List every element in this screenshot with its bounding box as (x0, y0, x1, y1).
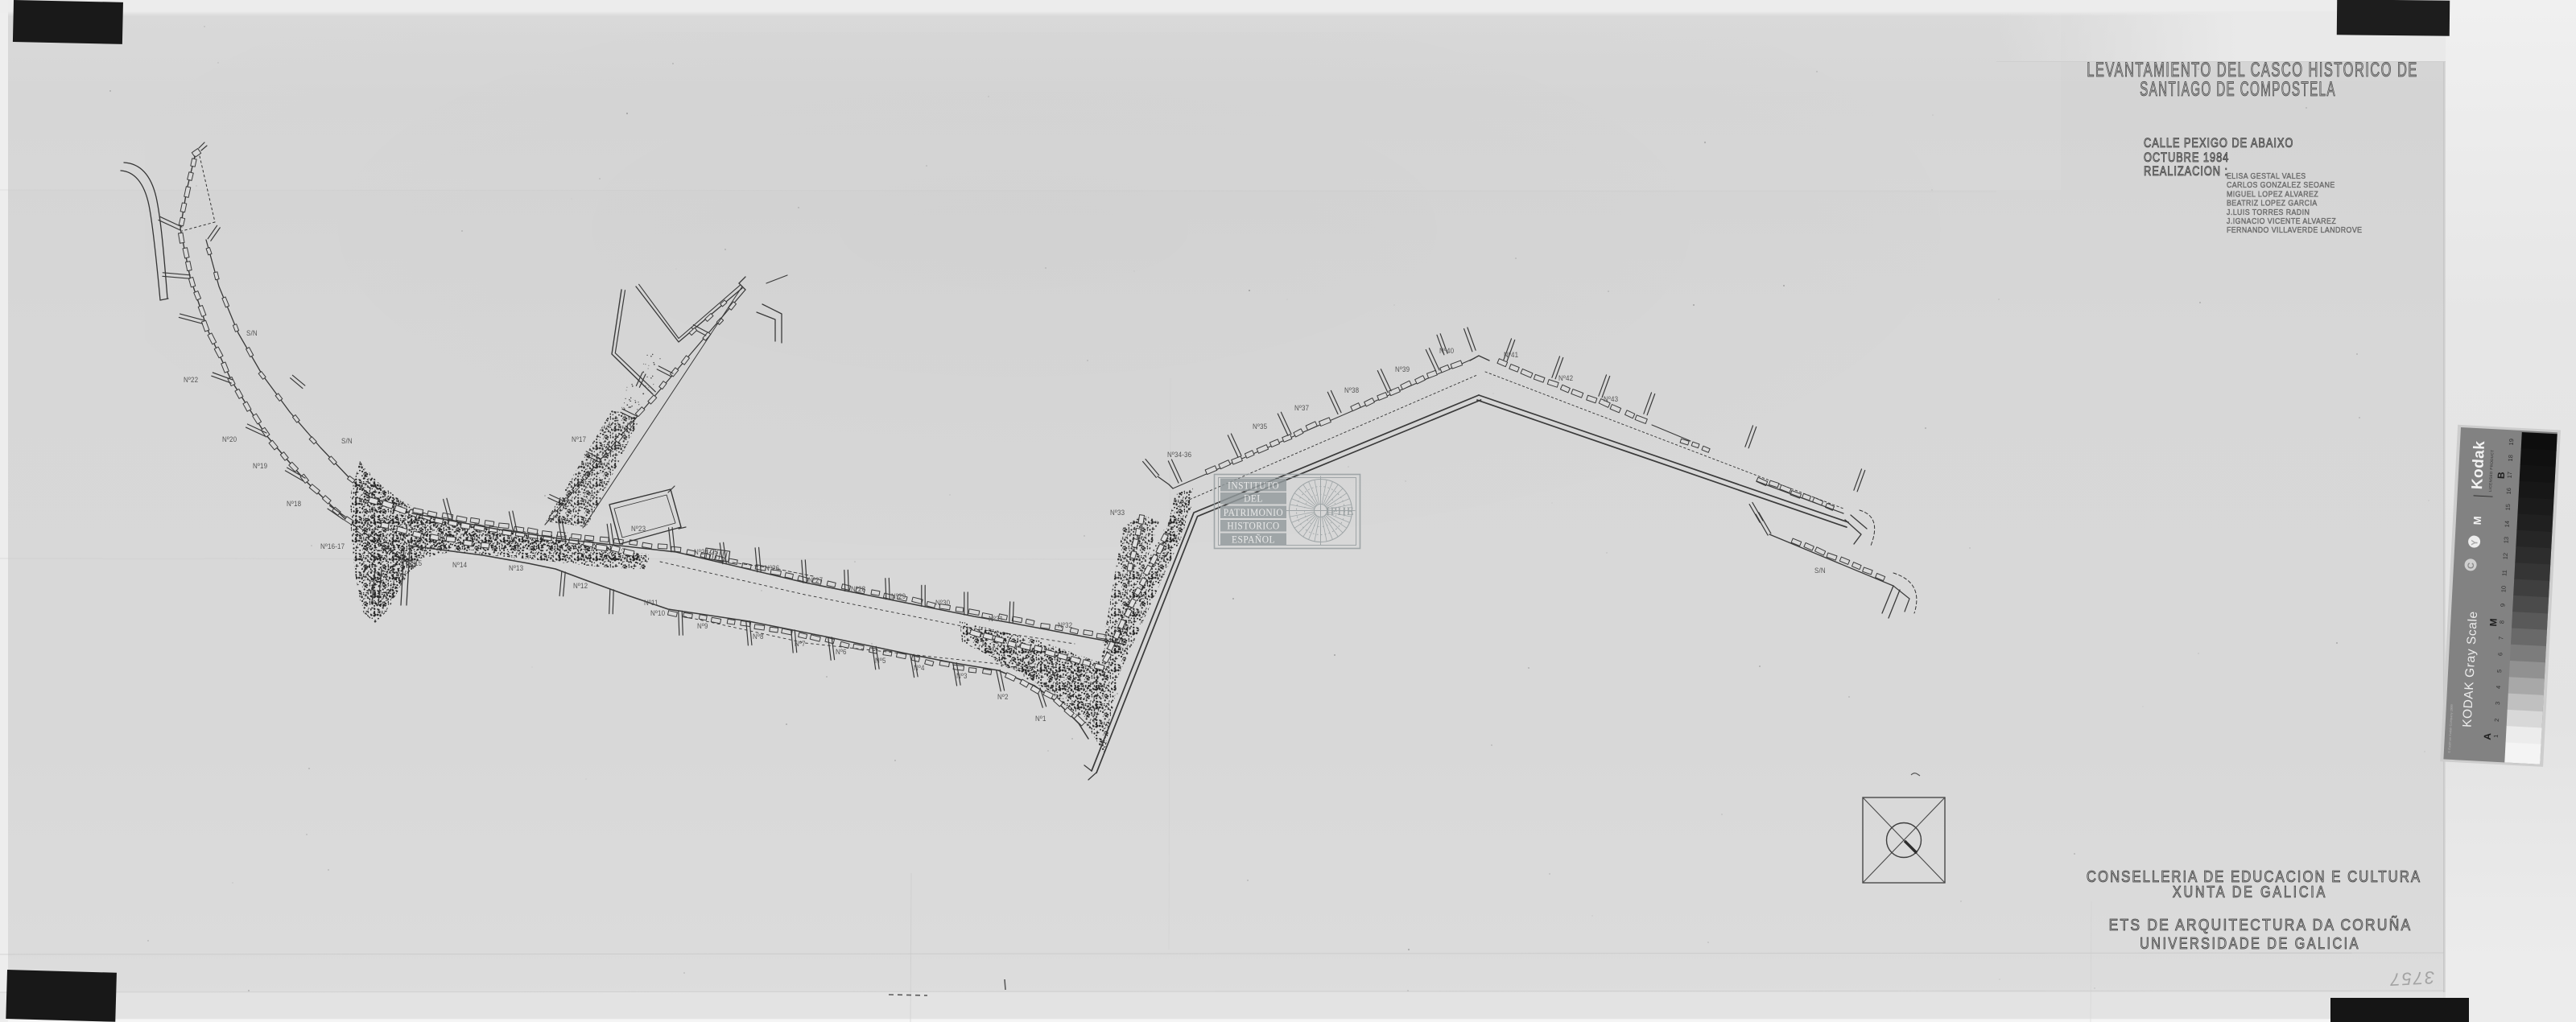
svg-text:MIGUEL LOPEZ ALVAREZ: MIGUEL LOPEZ ALVAREZ (2227, 189, 2318, 199)
svg-text:BEATRIZ LOPEZ GARCIA: BEATRIZ LOPEZ GARCIA (2227, 198, 2318, 208)
svg-text:SANTIAGO DE COMPOSTELA: SANTIAGO DE COMPOSTELA (2140, 78, 2336, 101)
svg-text:J.LUIS TORRES RADIN: J.LUIS TORRES RADIN (2227, 207, 2310, 216)
svg-text:CALLE PEXIGO DE ABAIXO: CALLE PEXIGO DE ABAIXO (2144, 137, 2293, 151)
svg-text:CARLOS GONZALEZ SEOANE: CARLOS GONZALEZ SEOANE (2227, 180, 2335, 190)
svg-text:J.IGNACIO VICENTE ALVAREZ: J.IGNACIO VICENTE ALVAREZ (2227, 216, 2336, 225)
svg-text:XUNTA DE GALICIA: XUNTA DE GALICIA (2173, 883, 2327, 900)
svg-text:ETS DE ARQUITECTURA DA CORUÑA: ETS DE ARQUITECTURA DA CORUÑA (2109, 916, 2413, 933)
svg-text:ELISA GESTAL VALES: ELISA GESTAL VALES (2227, 171, 2306, 180)
svg-text:OCTUBRE 1984: OCTUBRE 1984 (2144, 151, 2229, 166)
svg-text:FERNANDO VILLAVERDE LANDROVE: FERNANDO VILLAVERDE LANDROVE (2227, 225, 2362, 235)
svg-text:REALIZACION :: REALIZACION : (2144, 165, 2228, 179)
svg-text:UNIVERSIDADE DE GALICIA: UNIVERSIDADE DE GALICIA (2140, 934, 2360, 952)
